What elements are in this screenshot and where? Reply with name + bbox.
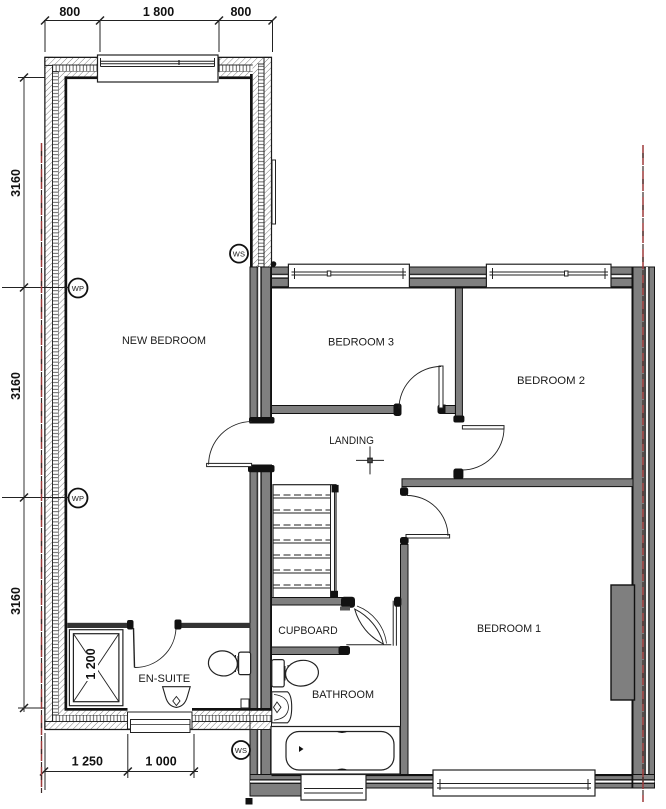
svg-text:EN-SUITE: EN-SUITE (138, 673, 190, 685)
svg-text:1 200: 1 200 (84, 648, 98, 679)
svg-text:CUPBOARD: CUPBOARD (278, 625, 337, 637)
svg-text:BEDROOM 1: BEDROOM 1 (477, 623, 541, 635)
svg-text:1 800: 1 800 (143, 5, 174, 19)
svg-text:BEDROOM 3: BEDROOM 3 (328, 337, 394, 349)
svg-text:NEW BEDROOM: NEW BEDROOM (122, 335, 206, 347)
svg-text:BEDROOM 2: BEDROOM 2 (517, 375, 585, 387)
svg-text:3160: 3160 (9, 372, 23, 400)
svg-text:1 250: 1 250 (72, 755, 103, 769)
svg-text:1 000: 1 000 (145, 755, 176, 769)
svg-text:WP: WP (72, 284, 84, 293)
svg-text:WP: WP (72, 494, 84, 503)
svg-text:800: 800 (59, 5, 80, 19)
svg-text:BATHROOM: BATHROOM (312, 689, 374, 701)
svg-text:WS: WS (235, 746, 247, 755)
svg-text:WS: WS (233, 249, 245, 258)
svg-text:LANDING: LANDING (329, 435, 374, 447)
svg-text:3160: 3160 (9, 587, 23, 615)
svg-text:3160: 3160 (9, 169, 23, 197)
svg-text:800: 800 (230, 5, 251, 19)
